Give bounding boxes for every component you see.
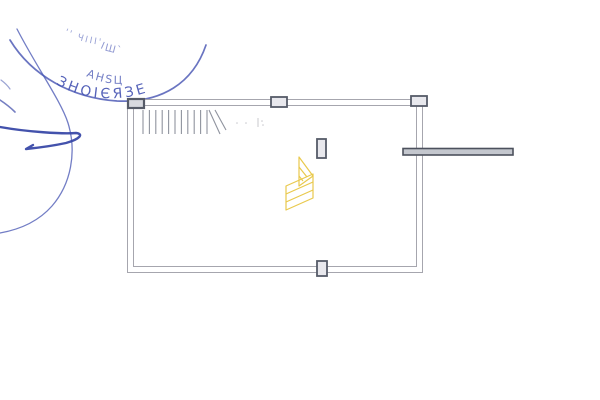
inner-wall bbox=[134, 106, 417, 267]
plan-walls bbox=[128, 100, 423, 273]
logo-hatch bbox=[299, 167, 307, 177]
stamp-arc-text: '' ЧІІІ' bbox=[63, 28, 104, 48]
signature-stroke bbox=[0, 127, 80, 149]
logo-outline bbox=[299, 157, 313, 186]
beam-rect bbox=[403, 149, 513, 156]
signature-stroke bbox=[1, 80, 10, 89]
column-top-middle bbox=[271, 97, 287, 107]
stair-break-line bbox=[209, 110, 220, 134]
pencil-dot bbox=[261, 120, 263, 122]
column-top-right bbox=[411, 96, 427, 106]
pencil-dot bbox=[262, 124, 264, 126]
pencil-dot bbox=[236, 122, 238, 124]
projecting-beam bbox=[403, 149, 513, 156]
outer-wall bbox=[128, 100, 423, 273]
yellow-logo-mark bbox=[286, 157, 313, 210]
scanned-drawing-page: ЗНОІЄЯЗЕАНЅЦІШ`'' ЧІІІ' bbox=[0, 0, 600, 400]
column-bottom-middle bbox=[317, 261, 327, 276]
column-markers bbox=[128, 96, 427, 276]
stairs-hatch bbox=[143, 110, 226, 134]
signature-stroke bbox=[0, 100, 15, 112]
floor-plan-drawing: ЗНОІЄЯЗЕАНЅЦІШ`'' ЧІІІ' bbox=[0, 0, 600, 400]
faint-pencil-marks bbox=[236, 118, 264, 127]
column-interior bbox=[317, 139, 326, 158]
stamp-arc-text: АНЅЦ bbox=[85, 67, 124, 87]
pencil-dot bbox=[245, 122, 247, 124]
column-top-left bbox=[128, 99, 144, 108]
